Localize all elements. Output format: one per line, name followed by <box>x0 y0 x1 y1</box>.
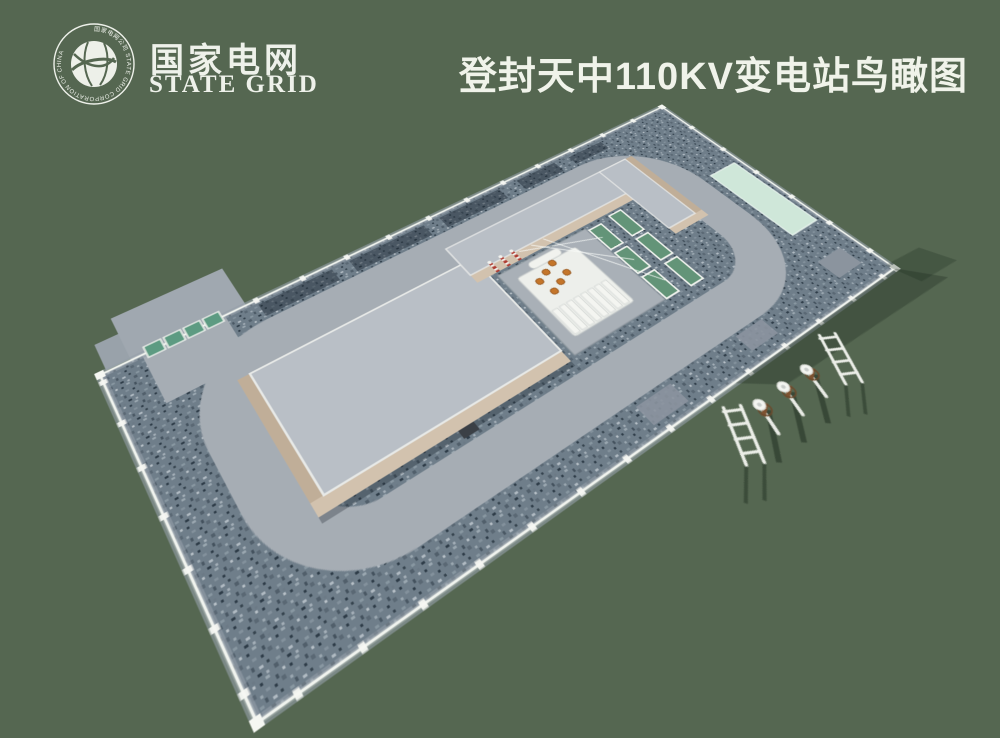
state-grid-emblem-icon: 国家电网公司 STATE GRID CORPORATION OF CHINA <box>52 22 136 106</box>
substation-aerial-rendering <box>0 43 1000 738</box>
substation-presentation-slide: { "page": { "background_color": "#556751… <box>0 0 1000 738</box>
brand-name-english: STATE GRID <box>149 71 319 99</box>
substation-3d-plan <box>0 43 1000 738</box>
page-title: 登封天中110KV变电站鸟瞰图 <box>459 45 968 100</box>
header: 国家电网公司 STATE GRID CORPORATION OF CHINA 国… <box>0 0 1000 118</box>
